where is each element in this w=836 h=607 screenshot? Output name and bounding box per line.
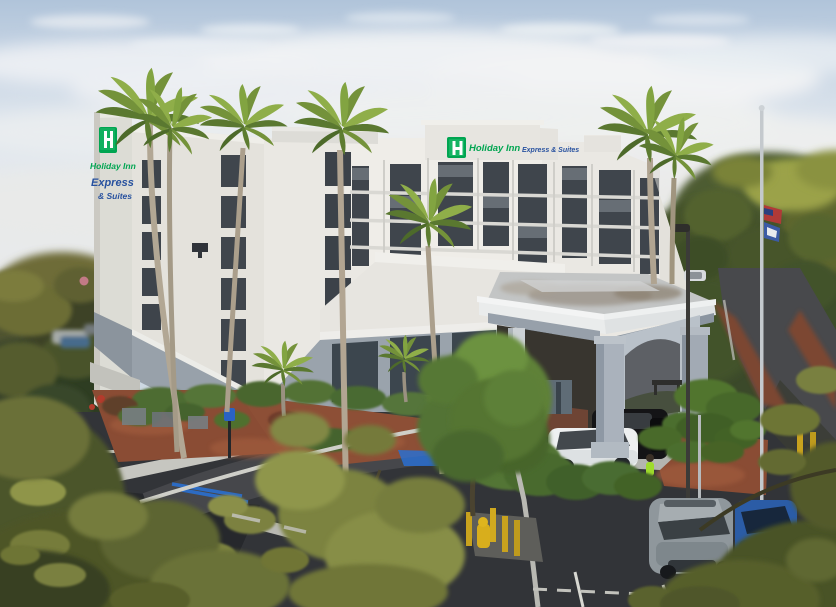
svg-text:Holiday Inn: Holiday Inn xyxy=(469,143,520,154)
svg-text:& Suites: & Suites xyxy=(98,191,132,201)
svg-text:Holiday Inn: Holiday Inn xyxy=(90,161,136,171)
svg-text:Express & Suites: Express & Suites xyxy=(522,147,579,154)
svg-text:Express: Express xyxy=(91,177,134,189)
